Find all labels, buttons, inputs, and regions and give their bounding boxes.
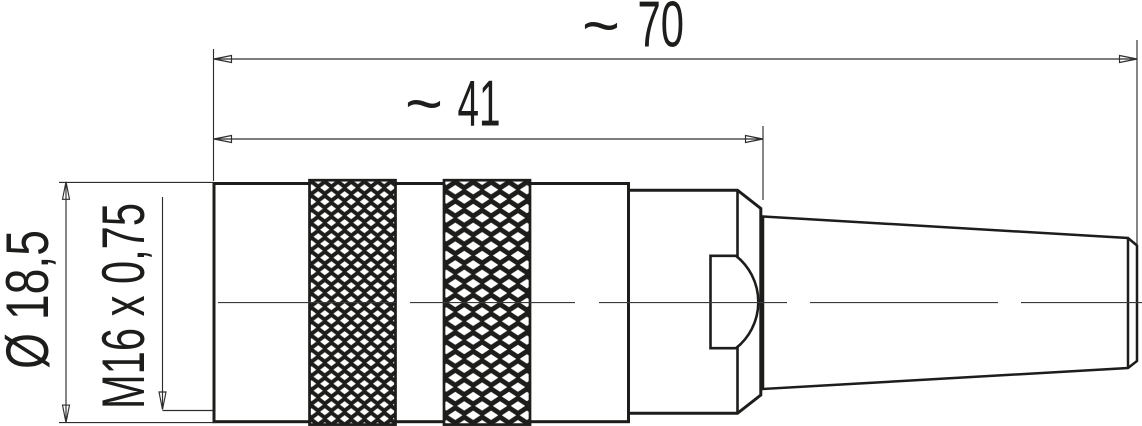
svg-text:41: 41 — [458, 67, 501, 140]
svg-text:~: ~ — [405, 67, 443, 140]
svg-text:Ø 18,5: Ø 18,5 — [0, 230, 61, 369]
svg-text:~: ~ — [582, 0, 620, 62]
svg-text:70: 70 — [638, 0, 685, 61]
svg-text:M16 x 0,75: M16 x 0,75 — [90, 203, 157, 409]
